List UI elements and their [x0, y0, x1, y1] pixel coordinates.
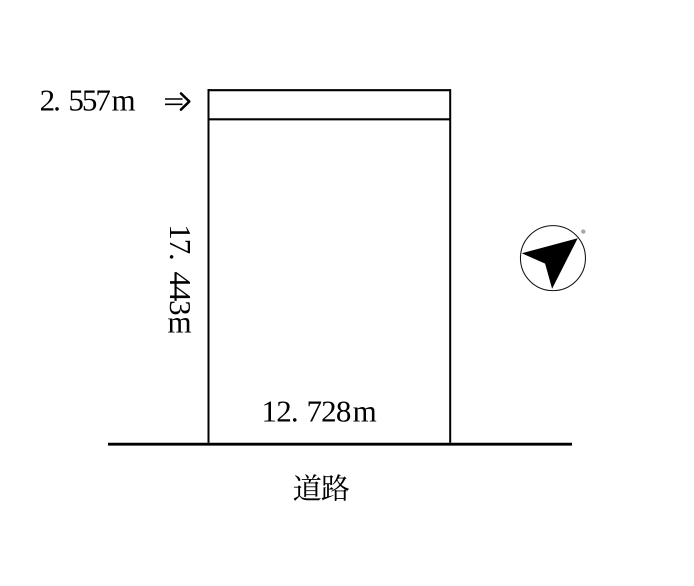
- svg-text:m: m: [168, 305, 192, 340]
- svg-text:12.728m: 12.728m: [262, 393, 377, 428]
- svg-text:2.557m: 2.557m: [40, 82, 136, 117]
